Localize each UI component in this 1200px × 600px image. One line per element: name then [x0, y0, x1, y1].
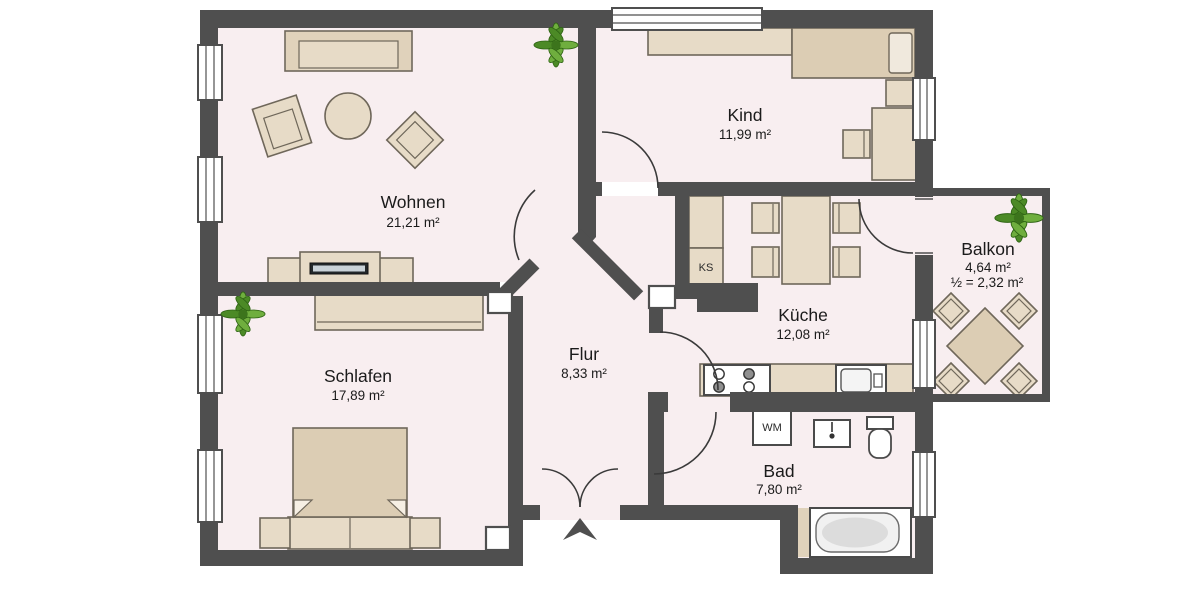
room-label-flur: Flur: [569, 344, 599, 364]
room-area-kueche: 12,08 m²: [776, 327, 830, 342]
washing-machine-label: WM: [762, 422, 782, 434]
room-area-schlafen: 17,89 m²: [331, 388, 385, 403]
toilet: [867, 417, 893, 458]
dining-table: [782, 196, 830, 284]
room-label-balkon: Balkon: [961, 239, 1015, 259]
wall-entrance-left: [523, 505, 540, 520]
bathtub: [798, 508, 911, 557]
wall-kueche-step: [697, 299, 758, 312]
nightstand: [886, 80, 913, 106]
nightstand: [260, 518, 290, 548]
window: [198, 450, 222, 522]
room-area-bad: 7,80 m²: [756, 482, 802, 497]
dining-chair: [833, 203, 860, 233]
wall-flur-east: [649, 308, 663, 333]
wall-bad-north: [730, 392, 933, 412]
wall-bad-west: [648, 412, 664, 520]
wall-kueche-west: [675, 192, 689, 286]
balcony-door-opening: [915, 197, 933, 255]
balcony-set: [933, 293, 1037, 399]
room-area-balkon-half: ½ = 2,32 m²: [951, 275, 1024, 290]
wall-nook-south: [780, 558, 933, 574]
balcony-railing-top: [933, 188, 1050, 196]
floorplan-svg: KS WM: [0, 0, 1200, 600]
kitchen-sink: [836, 365, 886, 396]
wall-bad-north: [648, 392, 668, 412]
wall-kind-south: [658, 182, 915, 196]
fridge-label: KS: [699, 262, 714, 274]
window: [913, 78, 935, 140]
room-label-bad: Bad: [763, 461, 794, 481]
nightstand: [410, 518, 440, 548]
dining-chair: [752, 247, 779, 277]
wall-schlafen-east: [508, 296, 523, 550]
wall-south-schlafen: [200, 550, 523, 566]
room-label-schlafen: Schlafen: [324, 366, 392, 386]
entrance-arrow: [563, 518, 597, 540]
room-label-wohnen: Wohnen: [381, 192, 446, 212]
wall-entrance-right: [620, 505, 780, 520]
washing-machine: WM: [753, 408, 791, 445]
room-label-kueche: Küche: [778, 305, 828, 325]
desk-chair: [843, 130, 870, 158]
dining-chair: [752, 203, 779, 233]
wardrobe: [648, 28, 792, 55]
wall-wohnen-kind: [578, 28, 596, 237]
window: [913, 452, 935, 517]
balcony-railing-right: [1042, 188, 1050, 402]
desk: [872, 108, 916, 180]
window: [198, 315, 222, 393]
shaft-niche: [488, 292, 512, 313]
tv-screen: [313, 266, 365, 272]
room-area-balkon: 4,64 m²: [965, 260, 1011, 275]
window: [198, 157, 222, 222]
window: [198, 45, 222, 100]
room-area-kind: 11,99 m²: [719, 127, 772, 142]
floorplan-page: KS WM: [0, 0, 1200, 600]
room-area-wohnen: 21,21 m²: [386, 215, 440, 230]
wall-kind-south-stub: [596, 182, 602, 196]
bed-kind: [792, 28, 915, 78]
kitchen-counter: [700, 364, 913, 396]
pillow: [889, 33, 912, 73]
wall-kueche-step: [675, 283, 758, 299]
fridge-cabinet: KS: [689, 196, 723, 284]
wardrobe: [315, 293, 483, 330]
window: [612, 8, 762, 30]
balcony-railing-bottom: [933, 394, 1050, 402]
double-bed: [288, 428, 412, 549]
room-label-kind: Kind: [727, 105, 762, 125]
coffee-table: [325, 93, 371, 139]
room-area-flur: 8,33 m²: [561, 366, 607, 381]
wall-north: [200, 10, 933, 28]
shaft-niche: [486, 527, 510, 550]
shaft-niche: [649, 286, 675, 308]
sofa: [285, 31, 412, 71]
window: [913, 320, 935, 388]
dining-chair: [833, 247, 860, 277]
bathroom-sink: [814, 420, 850, 447]
